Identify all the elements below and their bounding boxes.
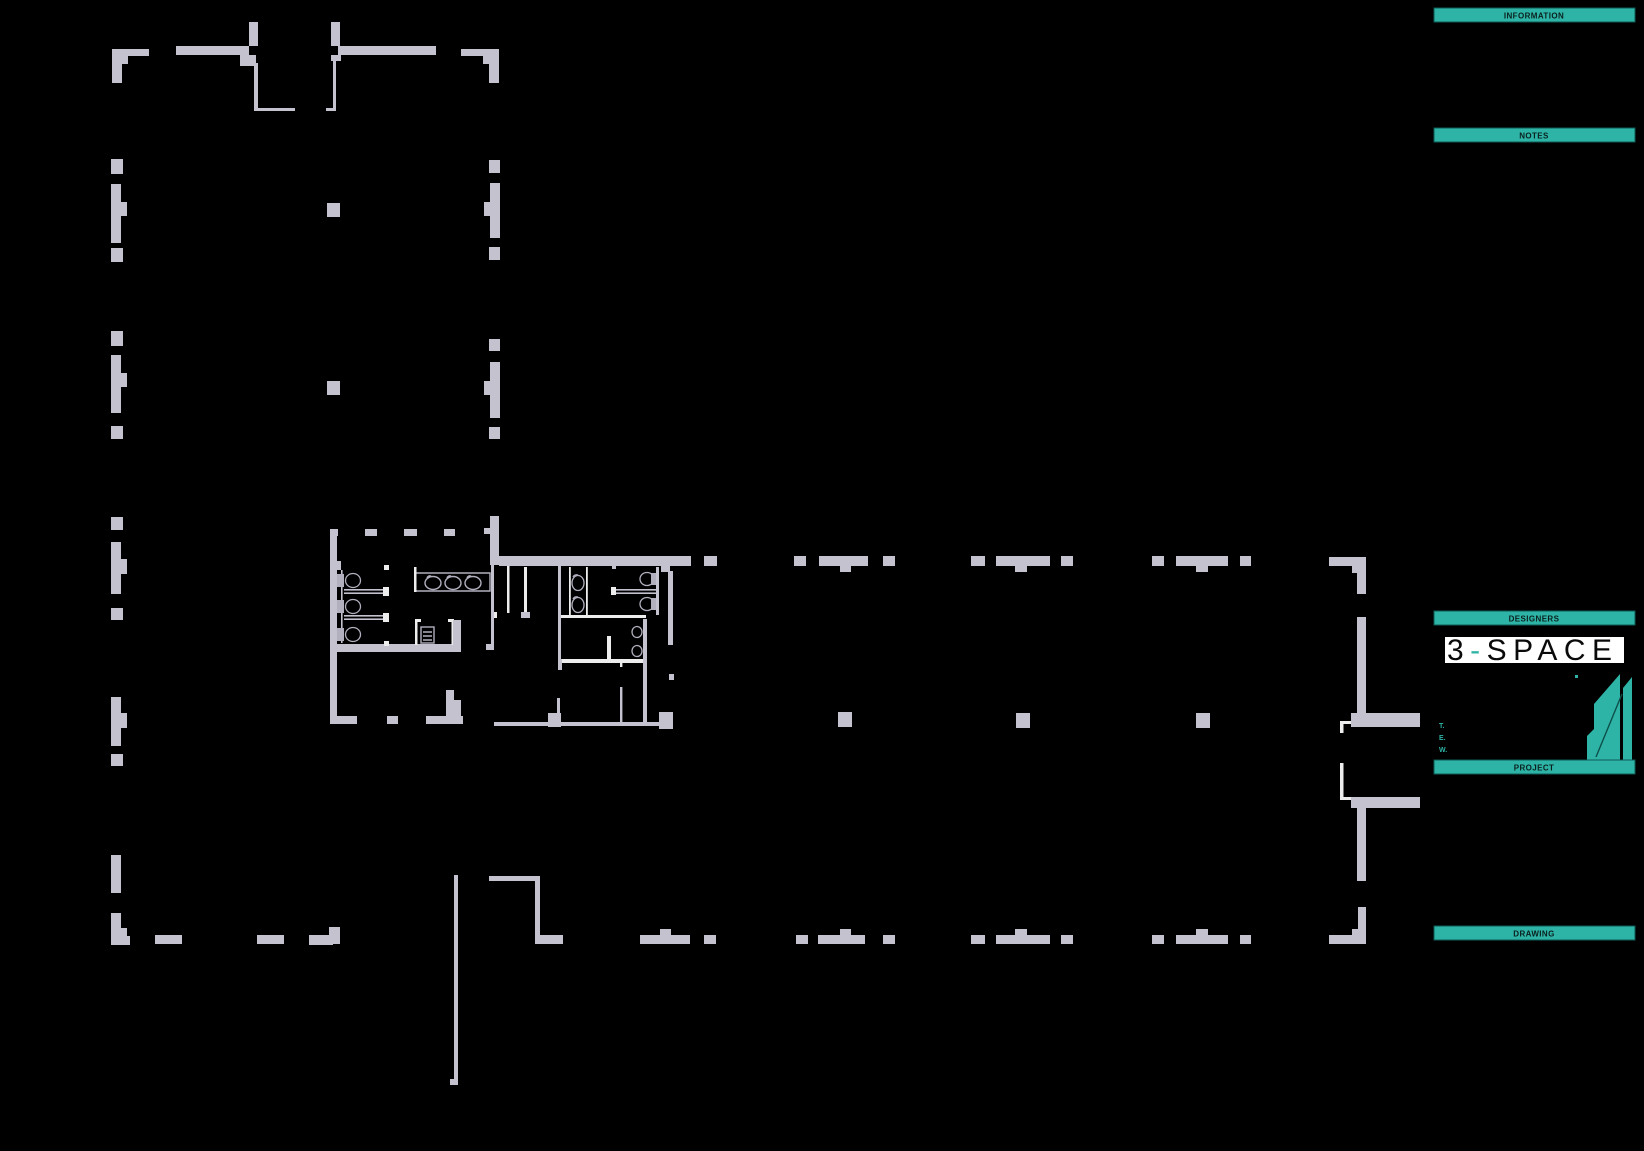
svg-text:NOTES: NOTES	[1519, 132, 1549, 141]
svg-text:3-SPACE: 3-SPACE	[1447, 634, 1622, 667]
svg-text:DRAWING: DRAWING	[1513, 930, 1554, 939]
svg-text:E.: E.	[1439, 735, 1446, 742]
svg-text:W.: W.	[1439, 747, 1447, 754]
svg-text:T.: T.	[1439, 723, 1445, 730]
svg-text:PROJECT: PROJECT	[1514, 764, 1555, 773]
svg-text:DESIGNERS: DESIGNERS	[1509, 615, 1560, 624]
svg-text:INFORMATION: INFORMATION	[1504, 12, 1564, 21]
